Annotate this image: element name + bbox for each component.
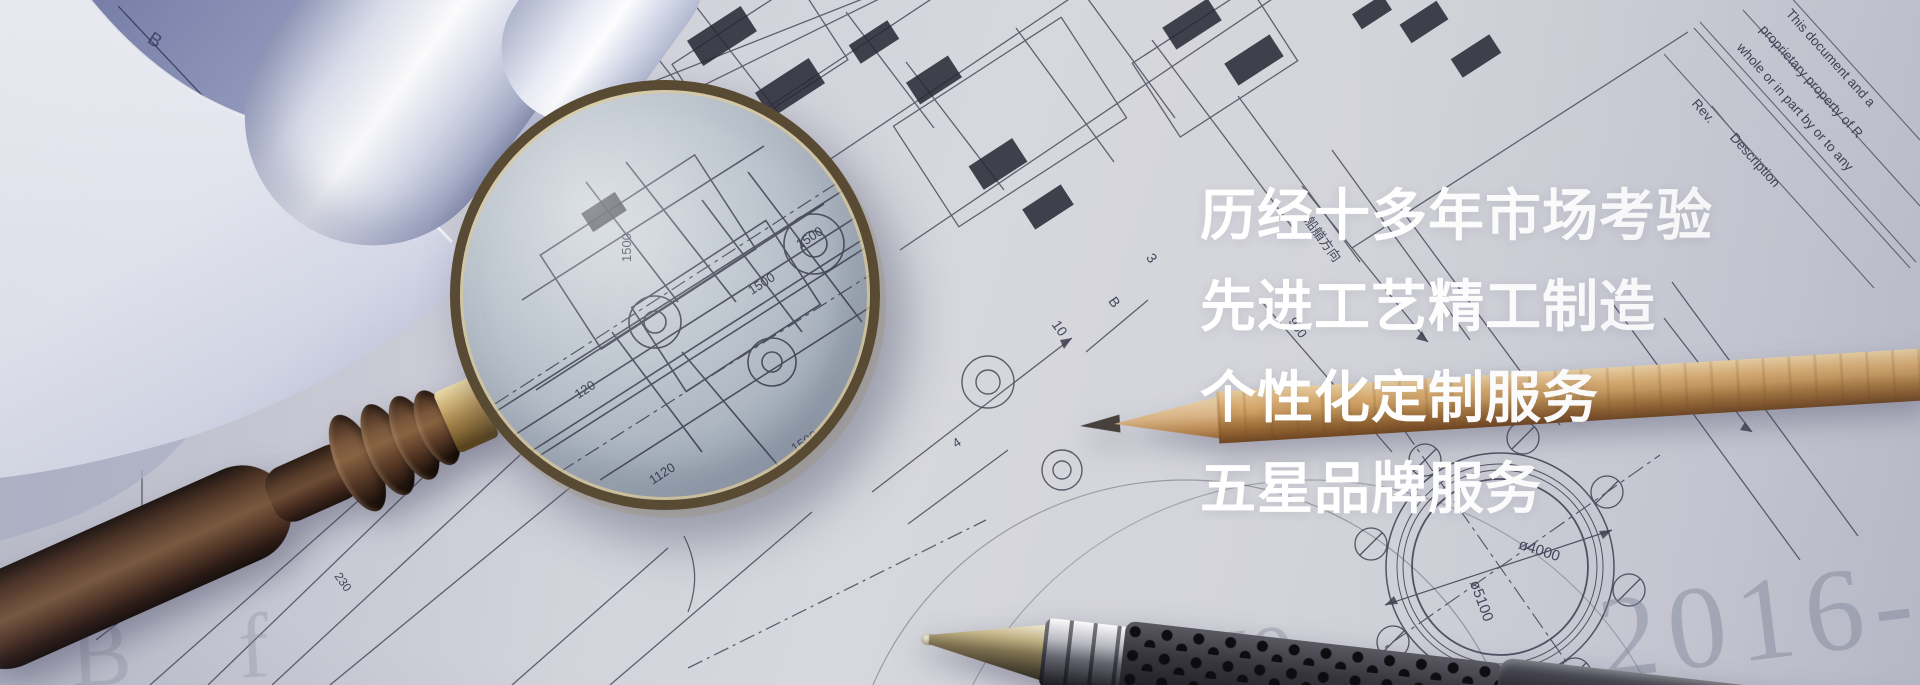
hero-slogan: 历经十多年市场考验 先进工艺精工制造 个性化定制服务 五星品牌服务: [1200, 170, 1713, 534]
pen-chrome-ring: [1038, 618, 1131, 685]
lens-dim-1500: 1500: [619, 233, 634, 262]
pen-nose-cone: [926, 611, 1052, 682]
hero-line-4: 五星品牌服务: [1200, 443, 1713, 534]
hero-line-2: 先进工艺精工制造: [1200, 261, 1713, 352]
hero-line-1: 历经十多年市场考验: [1200, 170, 1713, 261]
pencil-lead-tip: [1079, 415, 1120, 435]
hero-banner: 2016- M0 B f 3900 8 600 10 4 3 B 960 230…: [0, 0, 1920, 685]
magnified-drawing: [450, 80, 880, 510]
magnifier-lens: 1500 1500 1500 1500 1500 1120 120: [450, 80, 880, 510]
hero-line-3: 个性化定制服务: [1200, 352, 1713, 443]
